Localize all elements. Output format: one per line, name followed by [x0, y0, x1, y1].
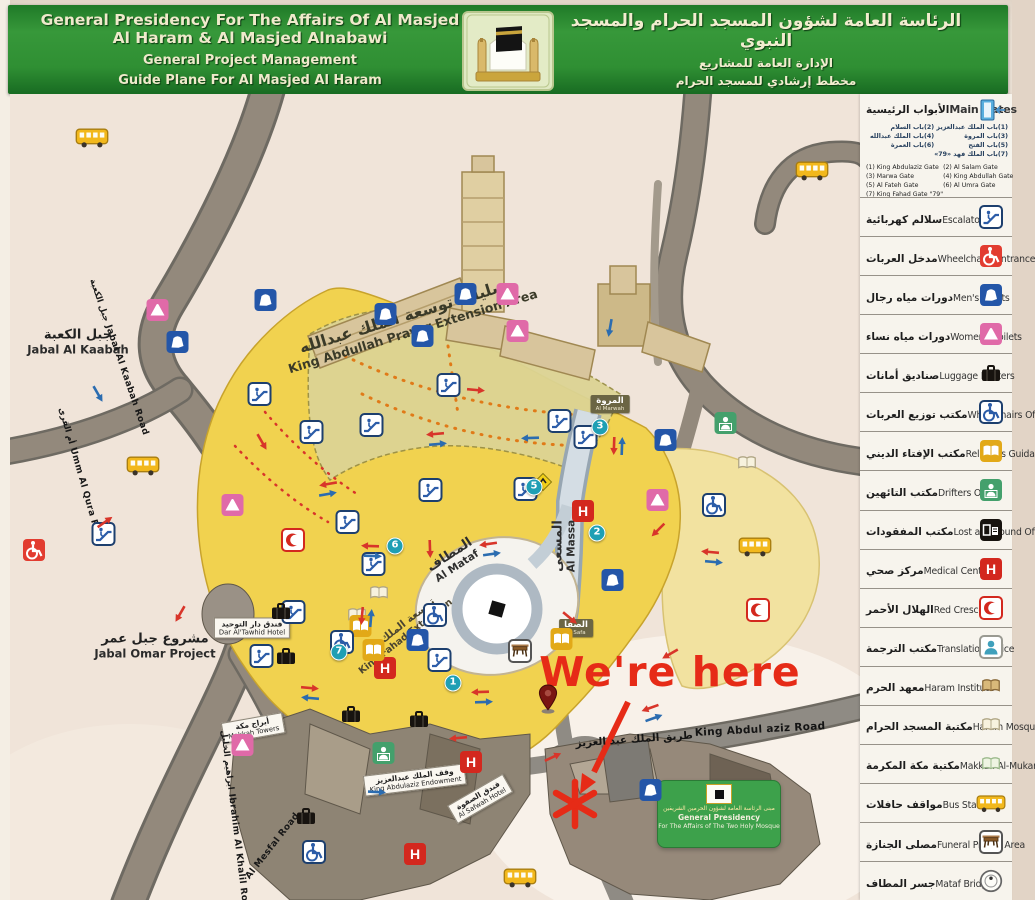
legend-item-medical-center: مركز صحيMedical CenterH: [860, 549, 1012, 588]
gate-en: (1) King Abdulaziz Gate: [866, 163, 943, 172]
direction-arrow-icon: [644, 714, 664, 723]
legend-item-main-gates: الأبواب الرئيسيةMain Gates(1)باب الملك ع…: [860, 94, 1012, 197]
lost-icon: [974, 518, 1008, 542]
mens-toilet-icon: [254, 288, 273, 312]
womens-toilet-icon: [496, 282, 515, 306]
womens-toilet-icon: [231, 733, 250, 757]
header-subtitle2-en: Guide Plane For Al Masjed Al Haram: [38, 73, 462, 88]
womens-toilet-icon: [506, 319, 525, 343]
header-title-en: General Presidency For The Affairs Of Al…: [38, 11, 462, 47]
svg-text:H: H: [578, 503, 588, 519]
direction-arrow-icon: [361, 614, 381, 623]
gate-number-badge: 5: [526, 479, 543, 496]
mens-toilet-icon: [374, 302, 393, 326]
legend-item-escalator: سلالم كهربائيةEscalator: [860, 197, 1012, 236]
rel-icon: [974, 439, 1008, 463]
direction-arrow-icon: [660, 650, 680, 659]
legend-item-men-s-toilets: دورات مياه رجالMen's Toilets: [860, 275, 1012, 314]
legend-label-ar: سلالم كهربائية: [866, 214, 942, 226]
escalator-icon: [548, 409, 569, 433]
legend-label-ar: مكتب التائهين: [866, 487, 938, 499]
legend-item-drifters-office: مكتب التائهينDrifters Office: [860, 470, 1012, 509]
direction-arrow-icon: [367, 788, 387, 797]
legend-label-ar: مدخل العربات: [866, 253, 938, 265]
svg-text:H: H: [410, 846, 420, 862]
gate-ar: (2)باب السلام: [866, 123, 934, 132]
direction-arrow-icon: [466, 386, 486, 395]
direction-arrow-icon: [474, 698, 494, 707]
womens-toilet-icon: [646, 488, 665, 512]
sign-kaaba-icon: [706, 784, 732, 804]
svg-text:H: H: [466, 754, 476, 770]
map-label-jabal-omar: مشروع جبل عمرJabal Omar Project: [94, 632, 215, 661]
direction-arrow-icon: [612, 442, 632, 451]
gate-number-badge: 6: [387, 538, 404, 555]
wheelchair-office-icon: [302, 840, 322, 864]
wheelchair-entrance-icon: [22, 538, 42, 562]
cres-icon: [974, 596, 1008, 620]
legend-label-ar: جسر المطاف: [866, 878, 935, 890]
legend-label-ar: مكتب الترجمة: [866, 643, 937, 655]
funeral-prayer-icon: [508, 639, 528, 663]
label-text-en: Al Massa: [566, 520, 578, 573]
legend-item-luggage-lockers: صناديق أماناتLuggage Lockers: [860, 353, 1012, 392]
label-text-en: Dar Al'Tawhid Hotel: [219, 629, 285, 637]
direction-arrow-icon: [704, 558, 724, 567]
medical-center-icon: H: [403, 842, 421, 866]
header-arabic: الرئاسة العامة لشؤون المسجد الحرام والمس…: [554, 11, 1008, 88]
bus-icon: [795, 159, 829, 181]
bus-icon: [503, 866, 537, 888]
legend-label-ar: معهد الحرم: [866, 682, 924, 694]
gate-ar: (7)باب الملك فهد «79»: [934, 150, 1008, 159]
gate-number-badge: 1: [445, 675, 462, 692]
legend-item-wheelchairs-entrance: مدخل العرباتWheelchairs Entrance: [860, 236, 1012, 275]
book2-icon: [974, 714, 1008, 736]
door-icon: [974, 98, 1008, 122]
legend-label-ar: مواقف حافلات: [866, 799, 943, 811]
escalator-icon: [300, 420, 321, 444]
gate-ar: (4)باب الملك عبدالله: [866, 132, 934, 141]
legend-item-haram-institute: معهد الحرمHaram Institute: [860, 666, 1012, 705]
gate-number-badge: 7: [331, 644, 348, 661]
religious-guidance-icon: [550, 627, 567, 651]
drifters-office-icon: [372, 741, 391, 765]
direction-arrow-icon: [520, 434, 540, 443]
escalator-icon: [419, 478, 440, 502]
gate-en: (6) Al Umra Gate: [943, 181, 1013, 190]
direction-arrow-icon: [700, 548, 720, 557]
presidency-logo: [462, 11, 554, 91]
direction-arrow-icon: [88, 390, 108, 399]
gate-en: (3) Marwa Gate: [866, 172, 943, 181]
legend-item-wheelchairs-office: مكتب توزيع العرباتWheelchairs Office: [860, 392, 1012, 431]
legend-item-funeral-prayer-area: مصلى الجنازةFuneral Prayer Area: [860, 822, 1012, 861]
legend-item-bus-station: مواقف حافلاتBus Station: [860, 783, 1012, 822]
direction-arrow-icon: [300, 684, 320, 693]
bus-icon: [126, 454, 160, 476]
gate-list-arabic: (1)باب الملك عبدالعزيز(3)باب المروة(5)با…: [866, 123, 1008, 160]
luggage-locker-icon: [406, 707, 424, 731]
drift-icon: [974, 478, 1008, 502]
trans-icon: [974, 635, 1008, 659]
site-map: We're here مبنى الرئاسة العامة لشؤون الح…: [10, 94, 860, 900]
luggage-locker-icon: [268, 599, 286, 623]
direction-arrow-icon: [428, 440, 448, 449]
gate-number-badge: 2: [589, 525, 606, 542]
mens-toilet-icon: [601, 568, 620, 592]
label-text-en: Jabal Omar Project: [94, 647, 215, 661]
men-icon: [974, 283, 1008, 307]
legend-label-ar: دورات مياه رجال: [866, 292, 953, 304]
sign-text-en2: For The Affairs of The Two Holy Mosque: [658, 823, 780, 830]
wheelchair-office-icon: [423, 603, 443, 627]
legend-label-ar: صناديق أمانات: [866, 370, 939, 382]
direction-arrow-icon: [95, 518, 115, 527]
gate-ar: (5)باب الفتح: [934, 141, 1008, 150]
direction-arrow-icon: [420, 545, 440, 554]
map-sign-photo: General Presidency For The Affairs Of Al…: [0, 0, 1035, 900]
bus-icon: [738, 535, 772, 557]
direction-arrow-icon: [482, 550, 502, 559]
direction-arrow-icon: [318, 490, 338, 499]
legend-label-ar: مكتب توزيع العربات: [866, 409, 967, 421]
legend-item-religious-guidance-office: مكتب الإفتاء الدينيReligious Guidance Of…: [860, 431, 1012, 470]
location-pin-icon: [537, 684, 559, 714]
direction-arrow-icon: [470, 688, 490, 697]
esc-icon: [974, 205, 1008, 229]
direction-arrow-icon: [252, 438, 272, 447]
womens-toilet-icon: [146, 298, 165, 322]
legend-label-ar: مكتبة المسجد الحرام: [866, 721, 973, 733]
direction-arrow-icon: [600, 324, 620, 333]
mens-toilet-icon: [639, 778, 658, 802]
escalator-icon: [437, 373, 458, 397]
label-text-ar: المروة: [596, 396, 625, 406]
woff-icon: [974, 400, 1008, 424]
photo-edge-left: [0, 0, 10, 900]
legend-item-women-s-toilets: دورات مياه نساءWomen's Toilets: [860, 314, 1012, 353]
label-text-ar: المسعى: [551, 520, 566, 573]
fun-icon: [974, 830, 1008, 854]
red-crescent-icon: [281, 528, 299, 552]
gate-ar: (6)باب العمرة: [866, 141, 934, 150]
luggage-locker-icon: [338, 702, 356, 726]
wentr-icon: [974, 244, 1008, 268]
direction-arrow-icon: [448, 734, 468, 743]
gate-number-badge: 3: [592, 419, 609, 436]
legend-item-lost-and-found-office: مكتب المفقوداتLost and Found Office: [860, 510, 1012, 549]
luggage-locker-icon: [293, 804, 311, 828]
legend-item-makkah-al-mukarramah-library: مكتبة مكة المكرمةMakkah Al-Mukarramah Li…: [860, 744, 1012, 783]
legend-item-mataf-bridge: جسر المطافMataf Bridge: [860, 861, 1012, 900]
header-title-ar: الرئاسة العامة لشؤون المسجد الحرام والمس…: [554, 11, 978, 51]
legend-item-red-crescent: الهلال الأحمرRed Crescent: [860, 588, 1012, 627]
legend-label-ar: مكتبة مكة المكرمة: [866, 760, 960, 772]
womens-toilet-icon: [221, 493, 240, 517]
medical-center-icon: H: [459, 750, 477, 774]
direction-arrow-icon: [170, 610, 190, 619]
legend-label-ar: الهلال الأحمر: [866, 604, 934, 616]
sign-text-en1: General Presidency: [658, 813, 780, 822]
direction-arrow-icon: [425, 430, 445, 439]
women-icon: [974, 322, 1008, 346]
header-english: General Presidency For The Affairs Of Al…: [8, 11, 462, 88]
gate-ar: (1)باب الملك عبدالعزيز: [934, 123, 1008, 132]
header-subtitle1-ar: الإدارة العامة للمشاريع: [554, 56, 978, 70]
label-text-en: Al Marwah: [596, 406, 625, 412]
book3-icon: [974, 753, 1008, 775]
mens-toilet-icon: [654, 428, 673, 452]
svg-text:H: H: [380, 660, 390, 676]
library-icon: [734, 452, 756, 474]
book1-icon: [974, 675, 1008, 697]
presidency-building-sign: مبنى الرئاسة العامة لشؤون الحرمين الشريف…: [657, 780, 781, 848]
legend-item-translation-office: مكتب الترجمةTranslation Office: [860, 627, 1012, 666]
gate-ar: (3)باب المروة: [934, 132, 1008, 141]
medical-center-icon: H: [571, 499, 589, 523]
mens-toilet-icon: [411, 324, 430, 348]
direction-arrow-icon: [560, 614, 580, 623]
bus-icon: [75, 126, 109, 148]
direction-arrow-icon: [543, 753, 563, 762]
legend-label-ar: دورات مياه نساء: [866, 331, 950, 343]
sign-text-ar: مبنى الرئاسة العامة لشؤون الحرمين الشريف…: [658, 806, 780, 812]
direction-arrow-icon: [478, 540, 498, 549]
header-subtitle2-ar: مخطط إرشادي للمسجد الحرام: [554, 74, 978, 88]
direction-arrow-icon: [360, 542, 380, 551]
svg-text:H: H: [986, 561, 996, 577]
mens-toilet-icon: [166, 330, 185, 354]
lug-icon: [974, 361, 1008, 385]
luggage-locker-icon: [273, 644, 291, 668]
religious-guidance-icon: [362, 638, 379, 662]
header-subtitle1-en: General Project Management: [38, 53, 462, 68]
legend-item-haram-mosque-library: مكتبة المسجد الحرامHaram Mosque Library: [860, 705, 1012, 744]
map-label-massa: المسعىAl Massa: [551, 520, 578, 573]
gate-en: (4) King Abdullah Gate: [943, 172, 1013, 181]
escalator-icon: [248, 382, 269, 406]
direction-arrow-icon: [363, 552, 383, 561]
escalator-icon: [336, 510, 357, 534]
direction-arrow-icon: [648, 526, 668, 535]
legend-label-ar: مصلى الجنازة: [866, 839, 937, 851]
med-icon: H: [974, 557, 1008, 581]
bus-icon: [974, 793, 1008, 813]
legend-label-ar: مكتب الإفتاء الديني: [866, 448, 966, 460]
escalator-icon: [360, 413, 381, 437]
legend-panel: الأبواب الرئيسيةMain Gates(1)باب الملك ع…: [860, 94, 1012, 900]
legend-label-ar: مركز صحي: [866, 565, 924, 577]
gate-list-english: (1) King Abdulaziz Gate(3) Marwa Gate(5)…: [866, 163, 1008, 200]
red-crescent-icon: [746, 598, 764, 622]
wheelchair-office-icon: [702, 493, 722, 517]
label-text-ar: مشروع جبل عمر: [94, 632, 215, 647]
drifters-office-icon: [714, 411, 733, 435]
legend-label-ar: الأبواب الرئيسية: [866, 104, 949, 116]
header-banner: General Presidency For The Affairs Of Al…: [8, 5, 1008, 94]
library-icon: [366, 582, 388, 604]
direction-arrow-icon: [300, 694, 320, 703]
bridge-icon: [974, 868, 1008, 894]
escalator-icon: [250, 644, 271, 668]
gate-en: (5) Al Fateh Gate: [866, 181, 943, 190]
map-label-marwah: المروةAl Marwah: [591, 395, 630, 413]
legend-label-ar: مكتب المفقودات: [866, 526, 953, 538]
mens-toilet-icon: [406, 628, 425, 652]
kaaba-emblem-icon: [466, 14, 550, 88]
escalator-icon: [428, 648, 449, 672]
gate-en: (2) Al Salam Gate: [943, 163, 1013, 172]
mens-toilet-icon: [454, 282, 473, 306]
